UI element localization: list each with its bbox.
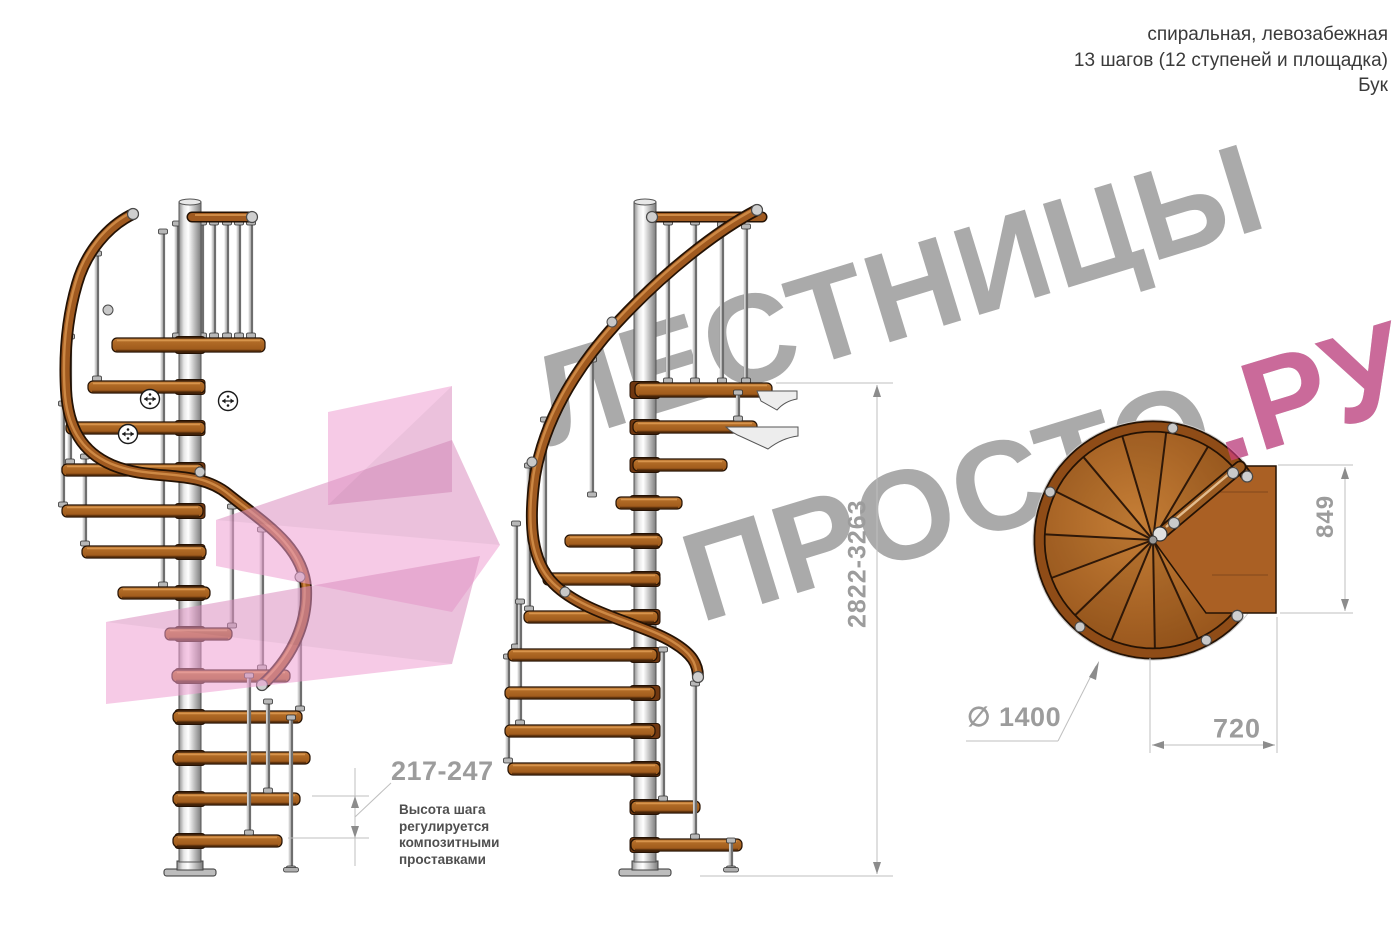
step-height-dimension: 217-247: [391, 756, 494, 787]
title-block: спиральная, левозабежная 13 шагов (12 ст…: [1074, 22, 1388, 99]
pink-arrow-logo: [0, 0, 1400, 929]
technical-drawing-page: ЛЕСТНИЦЫ ПРОСТО.РУ ЛЕСТНИЦЫ ПРОСТО.РУ сп…: [0, 0, 1400, 929]
stair-material-line: Бук: [1074, 73, 1388, 99]
stair-type-line: спиральная, левозабежная: [1074, 22, 1388, 48]
stair-steps-line: 13 шагов (12 ступеней и площадка): [1074, 48, 1388, 74]
diameter-dimension: ∅ 1400: [967, 702, 1061, 733]
logo-svg: [0, 0, 1400, 929]
step-height-note: Высота шага регулируется композитными пр…: [399, 802, 559, 868]
